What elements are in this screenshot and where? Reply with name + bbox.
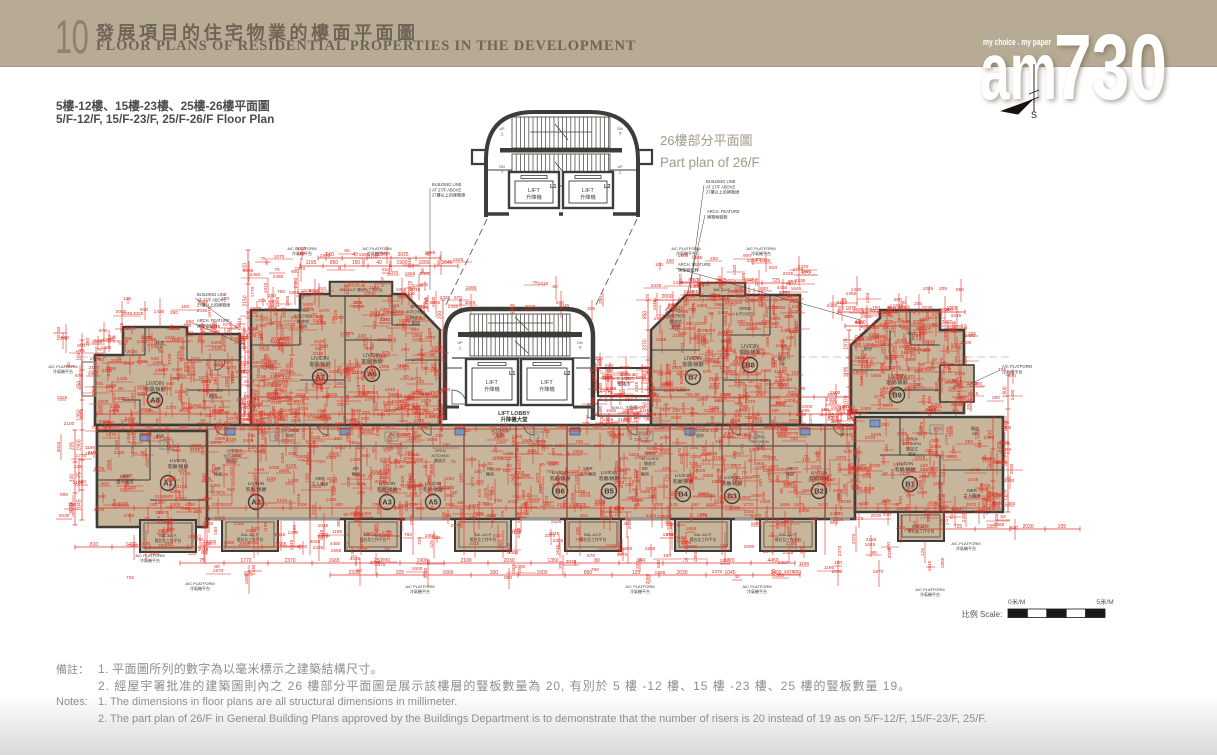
svg-text:1070: 1070: [745, 399, 756, 405]
svg-text:1045: 1045: [258, 430, 269, 436]
svg-text:1070: 1070: [207, 306, 213, 317]
svg-text:100: 100: [442, 442, 450, 448]
svg-text:1645: 1645: [927, 405, 933, 416]
svg-text:50: 50: [565, 451, 571, 457]
svg-text:40: 40: [352, 252, 358, 258]
svg-text:50: 50: [356, 568, 362, 574]
svg-text:冷氣機平台: 冷氣機平台: [190, 585, 210, 591]
svg-text:1015: 1015: [888, 393, 894, 404]
svg-text:2050: 2050: [280, 452, 286, 463]
svg-text:250: 250: [77, 381, 83, 390]
svg-text:1430: 1430: [654, 316, 665, 322]
svg-text:150: 150: [989, 501, 997, 507]
svg-text:80: 80: [487, 461, 493, 467]
svg-text:850: 850: [605, 417, 611, 425]
svg-text:2335: 2335: [313, 545, 324, 551]
svg-text:1900: 1900: [905, 357, 916, 363]
svg-text:850: 850: [694, 334, 702, 340]
svg-text:2000: 2000: [770, 316, 781, 322]
svg-text:1350: 1350: [224, 540, 235, 546]
svg-text:125: 125: [914, 368, 922, 374]
svg-text:1307: 1307: [354, 357, 360, 368]
svg-text:BR: BR: [642, 466, 648, 471]
svg-text:940: 940: [956, 506, 964, 512]
svg-text:1595: 1595: [161, 386, 172, 392]
svg-text:1900: 1900: [676, 424, 687, 430]
svg-text:1000: 1000: [802, 404, 813, 410]
svg-text:725: 725: [714, 373, 720, 381]
svg-text:940: 940: [382, 251, 390, 257]
svg-text:125: 125: [74, 464, 82, 470]
svg-text:0米/M: 0米/M: [1008, 597, 1025, 606]
svg-text:1875: 1875: [421, 398, 432, 404]
svg-text:2100: 2100: [88, 450, 99, 456]
svg-text:40: 40: [412, 430, 418, 436]
svg-text:1970: 1970: [407, 280, 413, 291]
svg-text:760: 760: [788, 308, 794, 316]
svg-text:2000: 2000: [124, 418, 135, 424]
svg-text:50: 50: [632, 372, 638, 378]
svg-text:1350: 1350: [693, 551, 699, 562]
svg-text:150: 150: [881, 499, 889, 505]
svg-text:1045: 1045: [923, 286, 934, 292]
svg-text:50: 50: [932, 322, 938, 328]
svg-text:1015: 1015: [254, 467, 265, 473]
svg-text:3025: 3025: [916, 524, 927, 530]
svg-text:250: 250: [720, 543, 728, 549]
svg-text:1600: 1600: [536, 570, 547, 576]
svg-text:1045: 1045: [308, 444, 319, 450]
svg-text:1195: 1195: [369, 285, 380, 291]
svg-text:940: 940: [647, 385, 655, 391]
svg-text:1875: 1875: [694, 283, 705, 289]
svg-text:80: 80: [708, 311, 714, 317]
svg-text:50: 50: [144, 516, 150, 522]
svg-text:2480: 2480: [751, 493, 762, 499]
svg-text:1970: 1970: [966, 502, 977, 507]
svg-text:1307: 1307: [785, 398, 796, 404]
svg-text:2030: 2030: [660, 435, 671, 441]
svg-text:1595: 1595: [742, 422, 753, 428]
svg-text:725: 725: [417, 537, 423, 545]
svg-text:75: 75: [309, 431, 315, 437]
svg-text:1600: 1600: [260, 496, 266, 507]
svg-text:150: 150: [153, 435, 161, 441]
svg-text:2370: 2370: [344, 541, 350, 552]
svg-text:BUILDING LINE: BUILDING LINE: [432, 182, 462, 187]
svg-text:1600: 1600: [303, 302, 314, 308]
svg-text:1430: 1430: [154, 309, 165, 315]
svg-text:1900: 1900: [215, 436, 226, 442]
svg-text:205: 205: [810, 516, 818, 522]
svg-text:1600: 1600: [594, 443, 605, 449]
svg-text:2030: 2030: [490, 467, 501, 473]
svg-text:75: 75: [869, 359, 875, 365]
svg-text:1525: 1525: [244, 379, 255, 385]
svg-text:1430: 1430: [818, 502, 829, 507]
svg-text:冷氣機平台: 冷氣機平台: [53, 368, 73, 374]
svg-text:50: 50: [343, 512, 349, 518]
svg-text:1645: 1645: [255, 449, 266, 455]
svg-text:下: 下: [500, 170, 504, 174]
svg-text:100: 100: [710, 428, 718, 434]
svg-text:1600: 1600: [768, 305, 779, 311]
svg-text:1307: 1307: [318, 532, 329, 538]
svg-text:100: 100: [672, 360, 678, 368]
svg-text:1665: 1665: [138, 392, 149, 398]
svg-text:900: 900: [61, 335, 69, 341]
svg-text:150: 150: [322, 433, 330, 439]
svg-text:250: 250: [170, 310, 178, 316]
svg-text:900: 900: [300, 291, 306, 299]
svg-text:75: 75: [142, 453, 148, 459]
svg-text:LIFT: LIFT: [541, 380, 553, 386]
svg-text:900: 900: [977, 440, 983, 448]
svg-text:LIFT: LIFT: [528, 188, 540, 194]
svg-text:940: 940: [98, 494, 106, 500]
svg-text:2030: 2030: [841, 499, 852, 505]
svg-text:300: 300: [490, 570, 499, 576]
svg-text:1015: 1015: [669, 490, 680, 496]
svg-text:250: 250: [737, 319, 745, 325]
svg-text:1015: 1015: [469, 541, 480, 547]
svg-text:670: 670: [75, 373, 83, 379]
svg-text:1665: 1665: [686, 526, 697, 532]
svg-text:上: 上: [500, 131, 504, 136]
svg-text:850: 850: [503, 468, 511, 474]
svg-text:150: 150: [691, 502, 699, 508]
svg-text:940: 940: [362, 453, 370, 459]
svg-text:2030: 2030: [832, 569, 843, 575]
svg-text:300: 300: [336, 519, 342, 527]
svg-text:900: 900: [291, 269, 299, 275]
svg-text:KITCHEN: KITCHEN: [736, 311, 754, 316]
svg-text:2400: 2400: [506, 542, 512, 553]
svg-text:200: 200: [438, 311, 444, 320]
svg-text:陽台及工作平台: 陽台及工作平台: [580, 537, 607, 542]
svg-text:冷氣機平台: 冷氣機平台: [751, 250, 771, 256]
svg-text:3025: 3025: [646, 412, 657, 418]
svg-text:1595: 1595: [802, 488, 813, 494]
svg-text:2050: 2050: [709, 385, 720, 391]
svg-text:1855: 1855: [285, 295, 291, 306]
svg-text:1430: 1430: [673, 280, 684, 286]
svg-text:1000: 1000: [661, 382, 672, 388]
svg-text:40: 40: [384, 546, 390, 552]
svg-text:1195: 1195: [626, 424, 636, 429]
svg-text:670: 670: [99, 328, 107, 334]
svg-text:BAL.&U.P.: BAL.&U.P.: [584, 533, 602, 537]
svg-text:2150: 2150: [723, 329, 734, 335]
svg-text:300: 300: [676, 371, 684, 377]
svg-text:300: 300: [703, 316, 709, 324]
svg-text:850: 850: [956, 287, 964, 293]
svg-text:2000: 2000: [833, 517, 844, 523]
svg-text:40: 40: [398, 464, 404, 470]
svg-text:760: 760: [739, 356, 747, 362]
svg-text:2335: 2335: [897, 431, 908, 437]
svg-text:675: 675: [500, 511, 506, 519]
svg-text:1595: 1595: [655, 570, 666, 576]
svg-text:2480: 2480: [290, 411, 301, 417]
svg-text:2050: 2050: [687, 544, 698, 550]
svg-text:810: 810: [268, 304, 276, 310]
svg-text:1665: 1665: [164, 477, 175, 483]
svg-text:40: 40: [747, 458, 753, 464]
svg-text:冷氣機平台: 冷氣機平台: [920, 591, 940, 597]
svg-text:1195: 1195: [749, 316, 755, 327]
svg-text:2335: 2335: [746, 353, 757, 359]
svg-text:670: 670: [383, 404, 389, 412]
svg-text:2150: 2150: [654, 425, 665, 431]
svg-text:1015: 1015: [968, 477, 979, 483]
svg-text:2335: 2335: [305, 472, 310, 483]
svg-text:810: 810: [580, 513, 588, 519]
svg-text:冷氣機平台: 冷氣機平台: [630, 588, 650, 594]
svg-text:1350: 1350: [547, 558, 558, 564]
svg-text:725: 725: [689, 461, 697, 467]
svg-text:725: 725: [542, 429, 550, 435]
svg-text:1645: 1645: [641, 431, 652, 437]
svg-text:810: 810: [476, 512, 484, 518]
svg-text:760: 760: [562, 500, 568, 508]
svg-text:1645: 1645: [930, 510, 941, 516]
svg-text:2335: 2335: [106, 365, 112, 376]
svg-text:1430: 1430: [251, 564, 257, 575]
svg-text:2000: 2000: [437, 481, 443, 492]
svg-text:1900: 1900: [869, 325, 880, 331]
svg-text:BUILDING LINE: BUILDING LINE: [706, 179, 736, 184]
svg-text:670: 670: [703, 369, 711, 375]
svg-text:1430: 1430: [117, 376, 128, 382]
svg-text:205: 205: [901, 326, 909, 332]
svg-text:200: 200: [493, 445, 499, 453]
svg-text:1875: 1875: [770, 357, 776, 368]
svg-text:1525: 1525: [608, 505, 614, 516]
svg-text:2370: 2370: [284, 558, 295, 564]
svg-text:725: 725: [948, 386, 956, 392]
svg-text:1000: 1000: [203, 521, 214, 527]
svg-text:2400: 2400: [984, 435, 995, 441]
svg-text:670: 670: [957, 396, 965, 402]
svg-text:1430: 1430: [448, 304, 459, 310]
svg-text:760: 760: [349, 440, 357, 446]
svg-text:50: 50: [1000, 514, 1006, 520]
svg-text:1350: 1350: [865, 292, 871, 303]
svg-text:2400: 2400: [961, 340, 972, 346]
svg-text:1195: 1195: [774, 369, 785, 375]
svg-text:2400: 2400: [142, 432, 153, 438]
svg-text:LIFT LOBBY: LIFT LOBBY: [498, 411, 530, 417]
svg-text:75: 75: [274, 532, 280, 538]
svg-text:A/C PLATFORM: A/C PLATFORM: [1002, 364, 1033, 369]
svg-text:2030: 2030: [248, 540, 259, 546]
svg-text:80: 80: [594, 558, 600, 564]
svg-text:LIFT: LIFT: [582, 188, 594, 194]
svg-text:1595: 1595: [692, 255, 703, 261]
svg-text:900: 900: [689, 513, 695, 521]
svg-text:1855: 1855: [664, 388, 675, 394]
svg-text:205: 205: [582, 421, 590, 427]
svg-text:1070: 1070: [893, 462, 904, 468]
svg-text:2335: 2335: [359, 422, 365, 433]
svg-text:75: 75: [361, 391, 367, 397]
svg-text:760: 760: [277, 289, 285, 295]
svg-text:200: 200: [78, 479, 86, 485]
svg-text:205: 205: [70, 442, 76, 451]
svg-text:675: 675: [904, 387, 912, 393]
svg-text:4450: 4450: [330, 541, 341, 547]
svg-text:L1: L1: [550, 184, 556, 190]
svg-text:1665: 1665: [106, 383, 117, 389]
svg-text:670: 670: [1008, 373, 1016, 379]
svg-text:1070: 1070: [111, 392, 117, 403]
svg-text:2335: 2335: [764, 510, 770, 521]
svg-text:2370: 2370: [865, 435, 876, 441]
svg-text:1070: 1070: [618, 456, 629, 462]
svg-text:2335: 2335: [553, 538, 564, 544]
svg-text:1970: 1970: [385, 424, 396, 429]
svg-text:250: 250: [685, 478, 693, 484]
svg-text:2030: 2030: [197, 308, 208, 314]
svg-text:675: 675: [934, 426, 942, 432]
svg-text:1855: 1855: [684, 326, 695, 332]
svg-text:1070: 1070: [406, 460, 417, 466]
svg-text:2100: 2100: [392, 305, 398, 316]
svg-text:1600: 1600: [316, 378, 327, 384]
svg-text:810: 810: [361, 416, 369, 422]
svg-text:2030: 2030: [503, 558, 514, 564]
svg-text:升降機: 升降機: [484, 385, 500, 393]
svg-text:670: 670: [772, 421, 780, 427]
svg-text:27樓以上的建築線: 27樓以上的建築線: [706, 189, 739, 195]
svg-text:2000: 2000: [239, 360, 250, 366]
svg-text:150: 150: [352, 260, 361, 266]
svg-text:1770: 1770: [743, 502, 754, 507]
svg-text:MBR: MBR: [967, 488, 977, 493]
svg-text:1045: 1045: [951, 313, 962, 319]
svg-text:300: 300: [884, 444, 890, 452]
svg-text:1855: 1855: [188, 534, 199, 540]
svg-text:2370: 2370: [212, 502, 223, 508]
svg-text:4450: 4450: [646, 513, 657, 519]
svg-text:205: 205: [927, 396, 933, 404]
svg-text:2400: 2400: [691, 454, 702, 460]
svg-text:2370: 2370: [712, 569, 723, 575]
svg-text:1307: 1307: [380, 276, 386, 287]
svg-text:1195: 1195: [332, 529, 343, 535]
svg-text:1430: 1430: [128, 543, 139, 549]
svg-text:1645: 1645: [927, 560, 933, 571]
svg-text:1645: 1645: [205, 383, 211, 394]
svg-text:1900: 1900: [299, 322, 305, 333]
svg-text:300: 300: [648, 391, 656, 397]
svg-text:1855: 1855: [289, 290, 300, 296]
svg-text:3025: 3025: [465, 300, 476, 306]
svg-text:1525: 1525: [551, 519, 562, 525]
svg-text:2100: 2100: [1003, 489, 1009, 500]
svg-text:AT 27/F ABOVE: AT 27/F ABOVE: [706, 184, 735, 189]
svg-text:205: 205: [813, 474, 821, 480]
svg-text:1350: 1350: [515, 564, 526, 570]
svg-text:2100: 2100: [737, 432, 748, 438]
svg-text:760: 760: [688, 307, 696, 313]
svg-text:1645: 1645: [385, 387, 396, 393]
svg-text:675: 675: [223, 322, 231, 328]
svg-text:1430: 1430: [288, 478, 299, 484]
svg-text:725: 725: [126, 575, 134, 581]
svg-text:2400: 2400: [720, 295, 731, 301]
svg-text:3025: 3025: [211, 463, 217, 474]
svg-text:1045: 1045: [695, 424, 706, 429]
svg-text:670: 670: [587, 553, 595, 559]
svg-text:850: 850: [469, 515, 477, 521]
svg-text:1195: 1195: [532, 442, 543, 448]
svg-text:2150: 2150: [866, 537, 877, 543]
svg-text:冷氣機平台: 冷氣機平台: [140, 557, 160, 563]
svg-text:1875: 1875: [893, 303, 904, 309]
svg-text:BAL.&U.P.: BAL.&U.P.: [474, 533, 492, 537]
svg-text:1645: 1645: [881, 454, 887, 465]
svg-text:75: 75: [125, 482, 131, 488]
svg-text:1970: 1970: [808, 413, 814, 424]
svg-text:A3: A3: [382, 498, 392, 507]
svg-text:1000: 1000: [215, 363, 226, 369]
svg-text:Part plan of 26/F: Part plan of 26/F: [660, 155, 760, 170]
svg-text:3025: 3025: [695, 468, 706, 474]
svg-text:250: 250: [200, 447, 206, 455]
svg-text:75: 75: [211, 408, 217, 414]
svg-text:ARCH. FEATURE: ARCH. FEATURE: [678, 262, 711, 267]
svg-text:40: 40: [931, 357, 937, 363]
svg-text:810: 810: [90, 542, 99, 548]
svg-text:1600: 1600: [622, 546, 633, 552]
svg-text:850: 850: [642, 439, 650, 445]
svg-text:1525: 1525: [614, 480, 625, 486]
svg-text:200: 200: [446, 476, 454, 482]
svg-text:810: 810: [227, 487, 235, 493]
svg-text:下: 下: [618, 132, 622, 136]
svg-text:1525: 1525: [418, 305, 429, 311]
svg-text:75: 75: [96, 347, 102, 353]
svg-text:1045: 1045: [318, 523, 329, 529]
svg-text:900: 900: [743, 253, 751, 259]
svg-text:1430: 1430: [742, 387, 748, 398]
svg-text:675: 675: [702, 458, 710, 464]
svg-text:40: 40: [282, 384, 288, 390]
svg-text:900: 900: [637, 405, 645, 411]
svg-text:1000: 1000: [329, 369, 340, 375]
svg-text:200: 200: [361, 259, 367, 267]
svg-text:2100: 2100: [900, 471, 911, 477]
svg-text:1665: 1665: [620, 467, 631, 473]
svg-text:1600: 1600: [861, 314, 872, 320]
svg-text:1900: 1900: [754, 461, 765, 467]
svg-text:3025: 3025: [370, 560, 381, 566]
svg-text:4450: 4450: [885, 365, 896, 371]
svg-text:810: 810: [353, 300, 361, 306]
svg-text:2480: 2480: [401, 432, 412, 438]
svg-text:1600: 1600: [919, 474, 930, 480]
svg-text:900: 900: [165, 542, 174, 548]
svg-text:205: 205: [923, 347, 931, 353]
svg-text:2030: 2030: [508, 499, 519, 505]
svg-text:1015: 1015: [970, 467, 981, 473]
svg-text:1770: 1770: [250, 286, 256, 297]
svg-text:1665: 1665: [890, 468, 896, 479]
svg-text:80: 80: [871, 343, 877, 349]
svg-text:1875: 1875: [763, 549, 774, 555]
